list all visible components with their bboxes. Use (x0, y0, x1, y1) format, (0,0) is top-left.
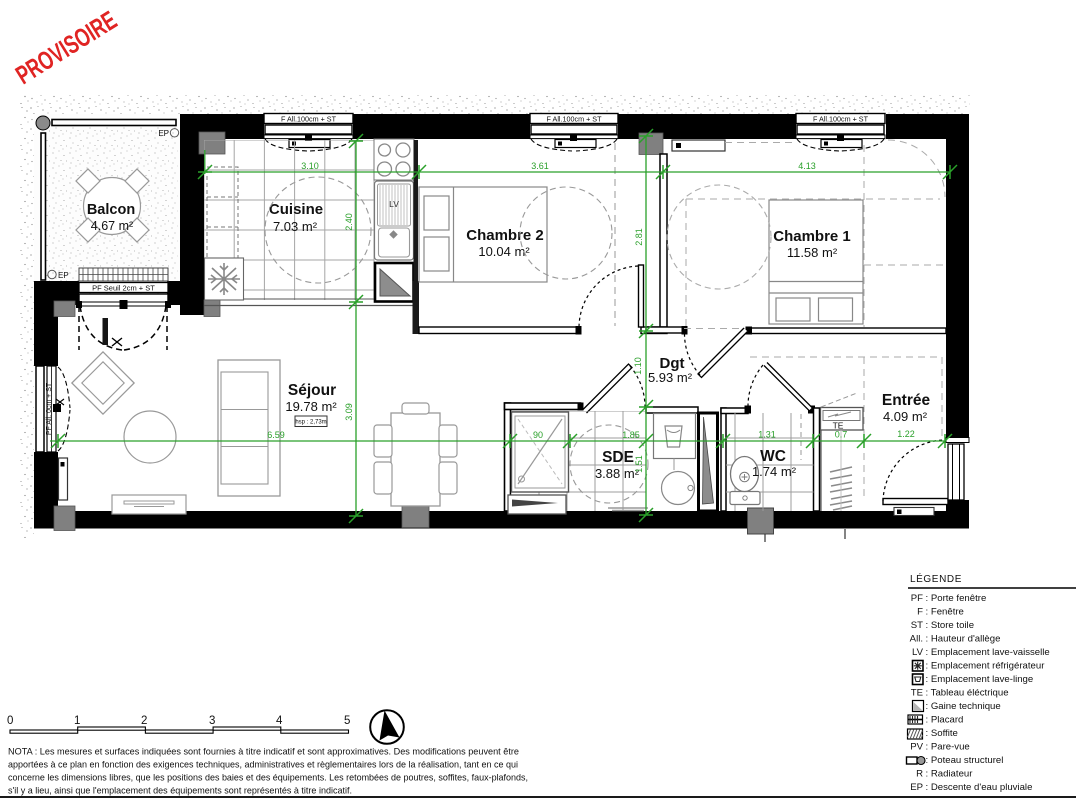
svg-text:R: R (916, 769, 923, 780)
svg-text:Cuisine: Cuisine (269, 201, 323, 218)
svg-text:: Emplacement lave-linge: : Emplacement lave-linge (926, 674, 1034, 685)
svg-text:Entrée: Entrée (882, 392, 931, 409)
svg-text:s'il y a lieu, ainsi que l'emp: s'il y a lieu, ainsi que l'emplacement d… (8, 786, 352, 796)
svg-text:4.67 m²: 4.67 m² (91, 219, 133, 233)
svg-text:ST: ST (911, 620, 923, 631)
svg-text:LV: LV (389, 199, 399, 209)
svg-text:PF: PF (911, 593, 923, 604)
svg-text:: Soffite: : Soffite (926, 728, 958, 739)
svg-text:: Descente d'eau pluviale: : Descente d'eau pluviale (926, 782, 1033, 793)
svg-text:6.59: 6.59 (267, 430, 285, 440)
svg-text:F All.100cm + ST: F All.100cm + ST (813, 115, 869, 124)
svg-text:0.7: 0.7 (835, 430, 848, 440)
svg-text:11.58 m²: 11.58 m² (787, 245, 838, 260)
svg-text:SDE: SDE (602, 449, 634, 466)
svg-text:: Emplacement lave-vaisselle: : Emplacement lave-vaisselle (926, 647, 1050, 658)
svg-text:1.85: 1.85 (622, 430, 640, 440)
svg-text:hsp : 2,73m: hsp : 2,73m (295, 420, 326, 426)
svg-text:4.09 m²: 4.09 m² (883, 409, 928, 424)
svg-text:3.10: 3.10 (301, 161, 319, 171)
svg-text:LÉGENDE: LÉGENDE (910, 572, 962, 585)
svg-text:EP: EP (158, 129, 169, 138)
svg-text:EP: EP (910, 782, 923, 793)
svg-text:PF Seuil 2cm + ST: PF Seuil 2cm + ST (92, 284, 155, 293)
svg-text:concerne les dimensions libres: concerne les dimensions libres, que les … (8, 773, 528, 783)
svg-text:1.10: 1.10 (633, 357, 643, 375)
svg-text:: Fenêtre: : Fenêtre (926, 607, 964, 618)
svg-text:Chambre 2: Chambre 2 (466, 227, 544, 244)
svg-text:PF All. 0cm + ST: PF All. 0cm + ST (46, 382, 53, 435)
svg-text:: Hauteur d'allège: : Hauteur d'allège (926, 634, 1001, 645)
svg-text:: Radiateur: : Radiateur (926, 769, 974, 780)
svg-text:: Pare-vue: : Pare-vue (926, 742, 970, 753)
svg-text:: Tableau éléctrique: : Tableau éléctrique (926, 688, 1009, 699)
svg-text:1.74 m²: 1.74 m² (752, 464, 797, 479)
svg-text:19.78 m²: 19.78 m² (285, 399, 337, 414)
svg-text:7.03 m²: 7.03 m² (273, 219, 318, 234)
svg-text:: Poteau structurel: : Poteau structurel (926, 755, 1004, 766)
svg-text:90: 90 (533, 430, 543, 440)
svg-text:F: F (917, 607, 923, 618)
svg-text:2.81: 2.81 (634, 228, 644, 246)
svg-text:: Porte fenêtre: : Porte fenêtre (926, 593, 987, 604)
svg-text:5.93 m²: 5.93 m² (648, 370, 693, 385)
svg-text:2: 2 (141, 715, 147, 727)
svg-text:: Emplacement réfrigérateur: : Emplacement réfrigérateur (926, 661, 1046, 672)
svg-text:NOTA : Les mesures et surfaces: NOTA : Les mesures et surfaces indiquées… (8, 747, 519, 757)
svg-text:Chambre 1: Chambre 1 (773, 228, 851, 245)
svg-text:F All.100cm + ST: F All.100cm + ST (547, 115, 603, 124)
svg-text:4.13: 4.13 (798, 161, 816, 171)
svg-text:EP: EP (58, 271, 69, 280)
svg-text:Séjour: Séjour (288, 382, 336, 399)
svg-text:2.40: 2.40 (344, 213, 354, 231)
svg-text:PV: PV (910, 742, 923, 753)
svg-text:5: 5 (344, 715, 350, 727)
svg-text:: Gaine technique: : Gaine technique (926, 701, 1001, 712)
svg-text:1.31: 1.31 (758, 430, 776, 440)
svg-text:1: 1 (74, 715, 80, 727)
svg-text:4: 4 (276, 715, 283, 727)
svg-text:apportées à ce plan en fonctio: apportées à ce plan en fonction des exig… (8, 760, 518, 770)
svg-text:Balcon: Balcon (87, 202, 135, 218)
svg-text:TE: TE (911, 688, 923, 699)
svg-text:1.22: 1.22 (897, 429, 915, 439)
svg-text:3: 3 (209, 715, 215, 727)
svg-text:F All.100cm + ST: F All.100cm + ST (281, 115, 337, 124)
svg-text:3.61: 3.61 (531, 161, 549, 171)
svg-text:LV: LV (912, 647, 924, 658)
svg-text:3.88 m²: 3.88 m² (595, 466, 640, 481)
svg-text:3.09: 3.09 (344, 403, 354, 421)
svg-text:All.: All. (910, 634, 923, 645)
svg-text:: Store toile: : Store toile (926, 620, 975, 631)
svg-text:: Placard: : Placard (926, 715, 964, 726)
svg-text:1.51: 1.51 (634, 455, 644, 473)
svg-text:WC: WC (760, 448, 786, 465)
svg-text:0: 0 (7, 715, 13, 727)
